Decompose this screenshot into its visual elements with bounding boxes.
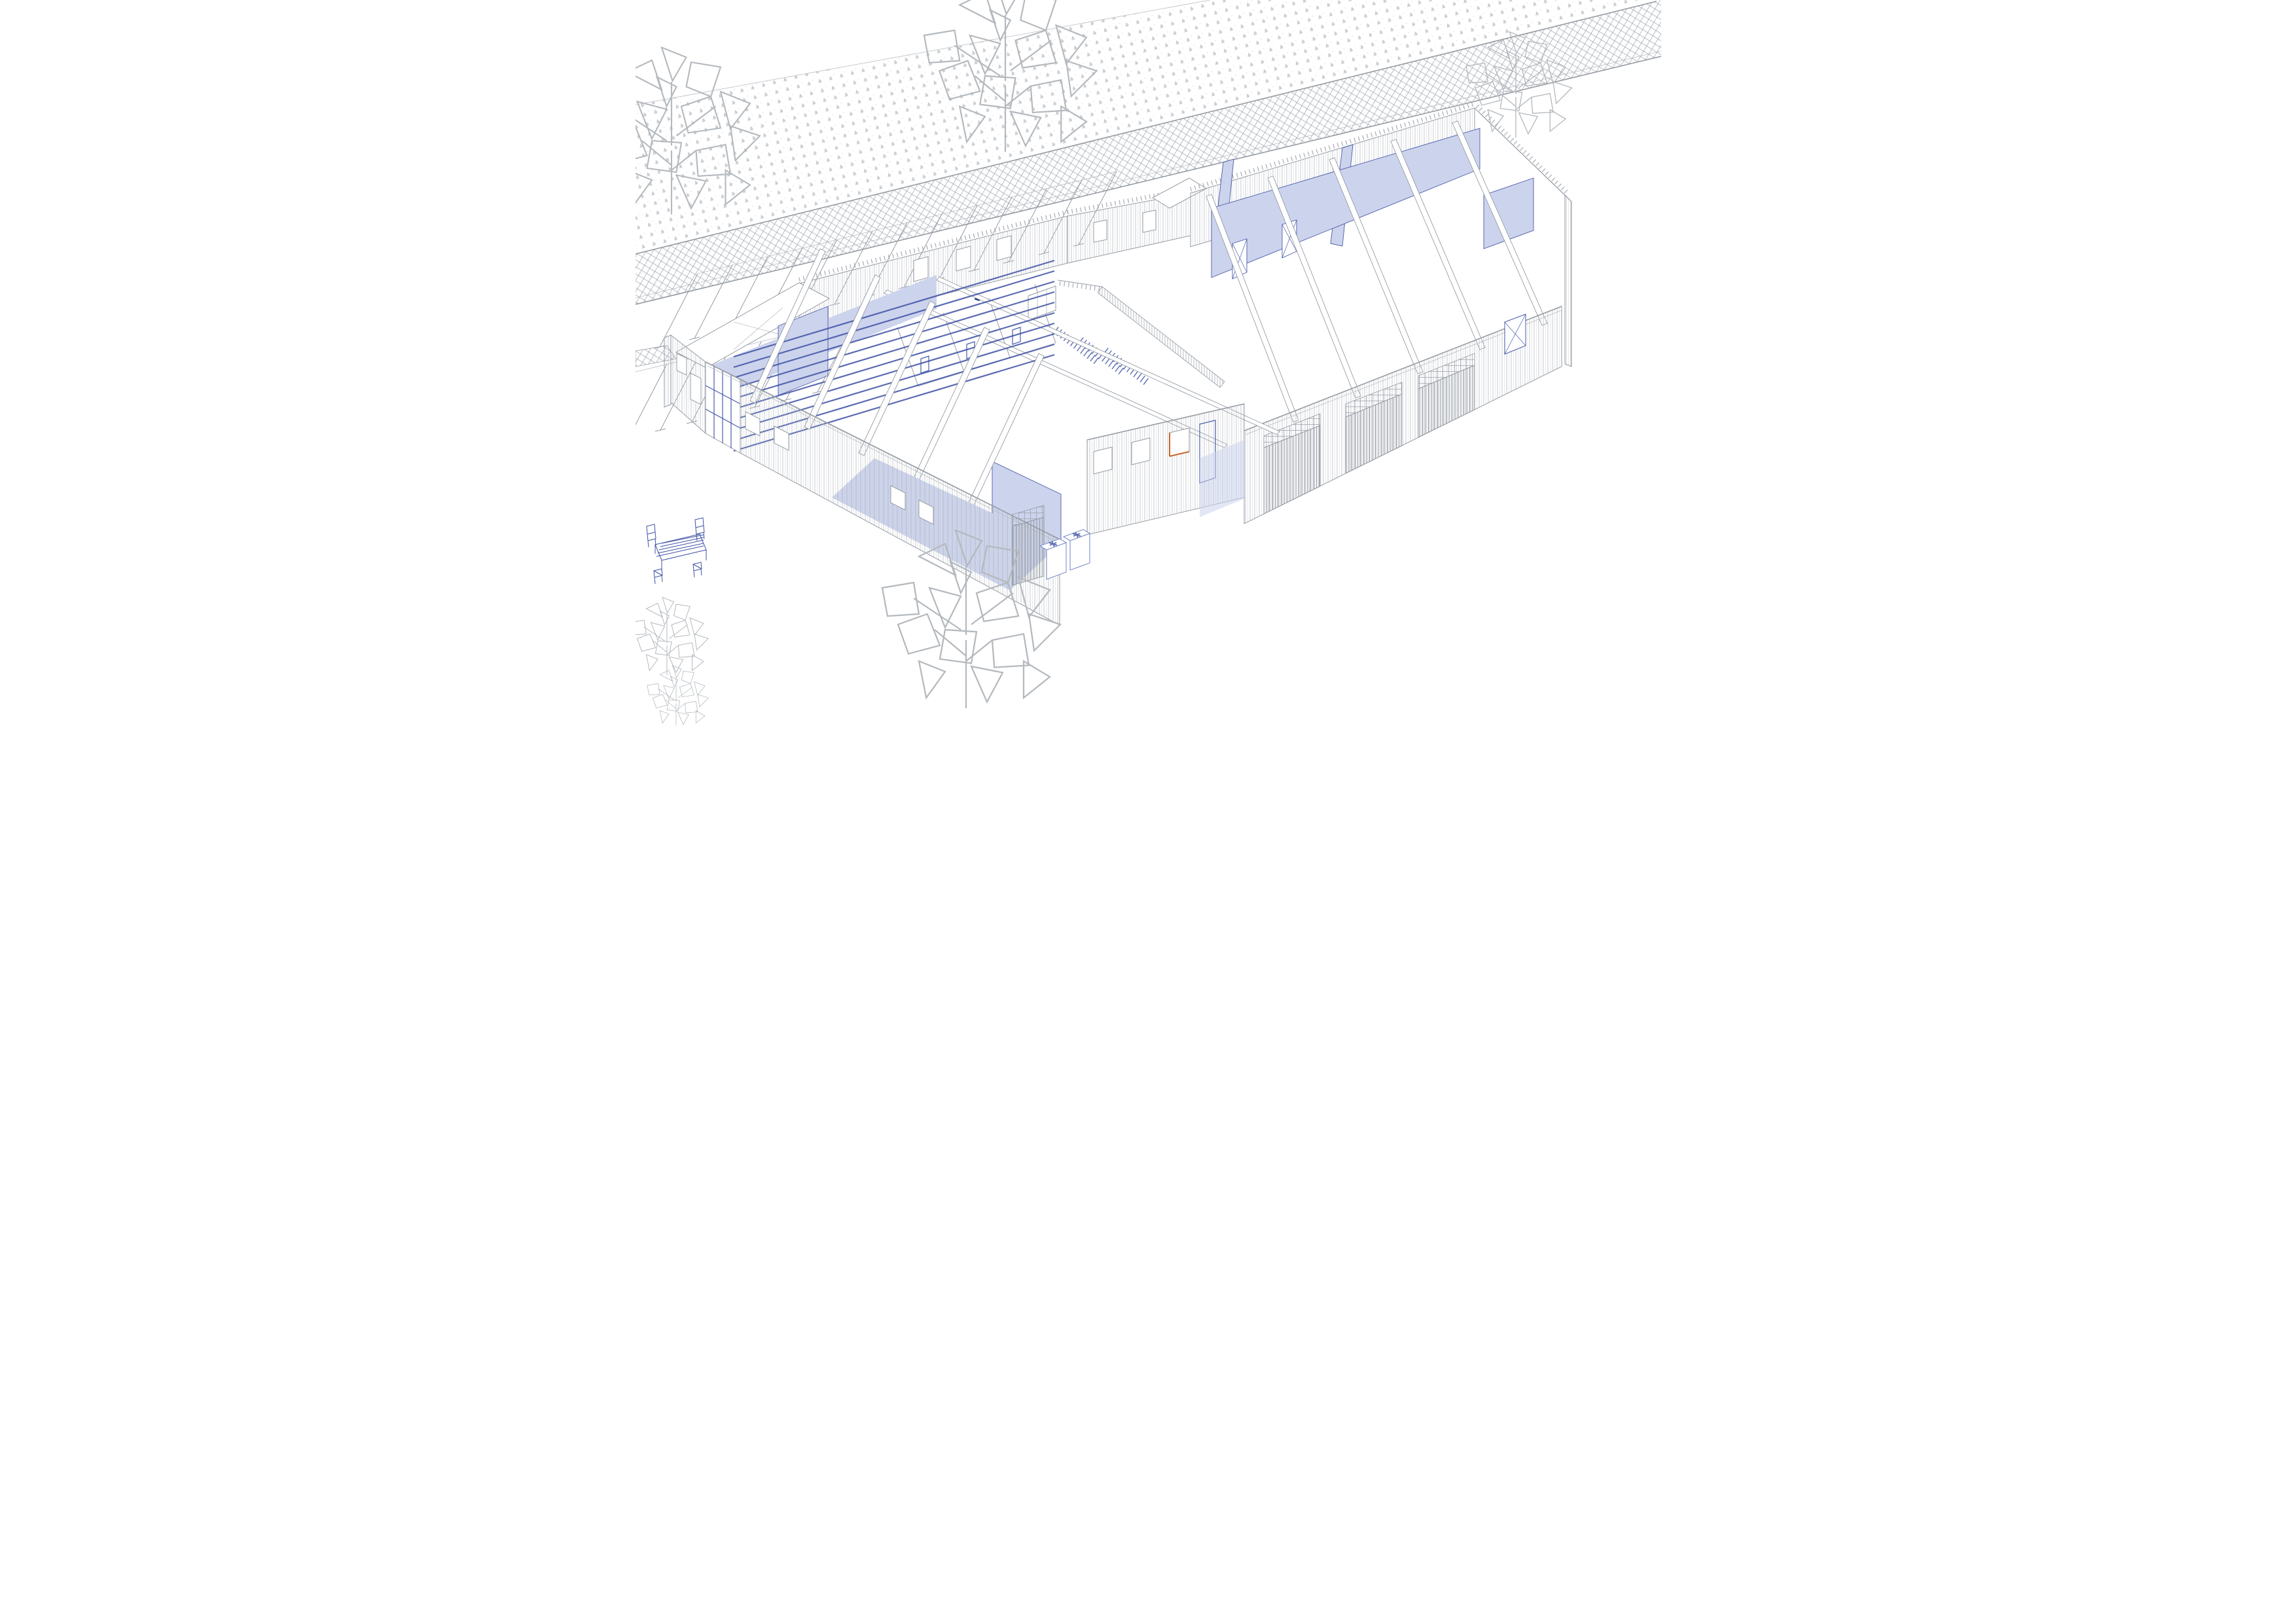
right-end-gable-strip [1565, 195, 1571, 367]
patio-table [655, 534, 706, 571]
back-window [997, 236, 1011, 261]
back-window [956, 246, 971, 271]
axonometric-drawing [636, 0, 1661, 725]
patio-chair [693, 562, 702, 577]
front-window [1094, 447, 1112, 474]
patio-chair [654, 569, 662, 584]
drawing-sheet [636, 0, 1661, 725]
central-front-facade [1087, 404, 1244, 535]
shrub [636, 598, 708, 676]
orange-framed-window [1170, 428, 1189, 456]
stair-balustrade [1098, 287, 1225, 388]
blue-door [921, 356, 929, 373]
front-window [1132, 438, 1150, 465]
patio-set [647, 518, 706, 584]
back-window [1143, 210, 1156, 232]
shrub [647, 666, 709, 725]
patio-chair [647, 524, 656, 547]
back-window [1094, 220, 1107, 242]
garage-door [1013, 505, 1044, 585]
roof-slope-rafter-ticks [1477, 106, 1568, 193]
gable-door [691, 373, 701, 405]
stair-steps [1060, 283, 1102, 289]
west-gable-edge [664, 335, 671, 407]
right-wing-front-facade [1244, 306, 1562, 524]
hvac-condenser [1064, 530, 1090, 570]
back-window [914, 257, 928, 281]
